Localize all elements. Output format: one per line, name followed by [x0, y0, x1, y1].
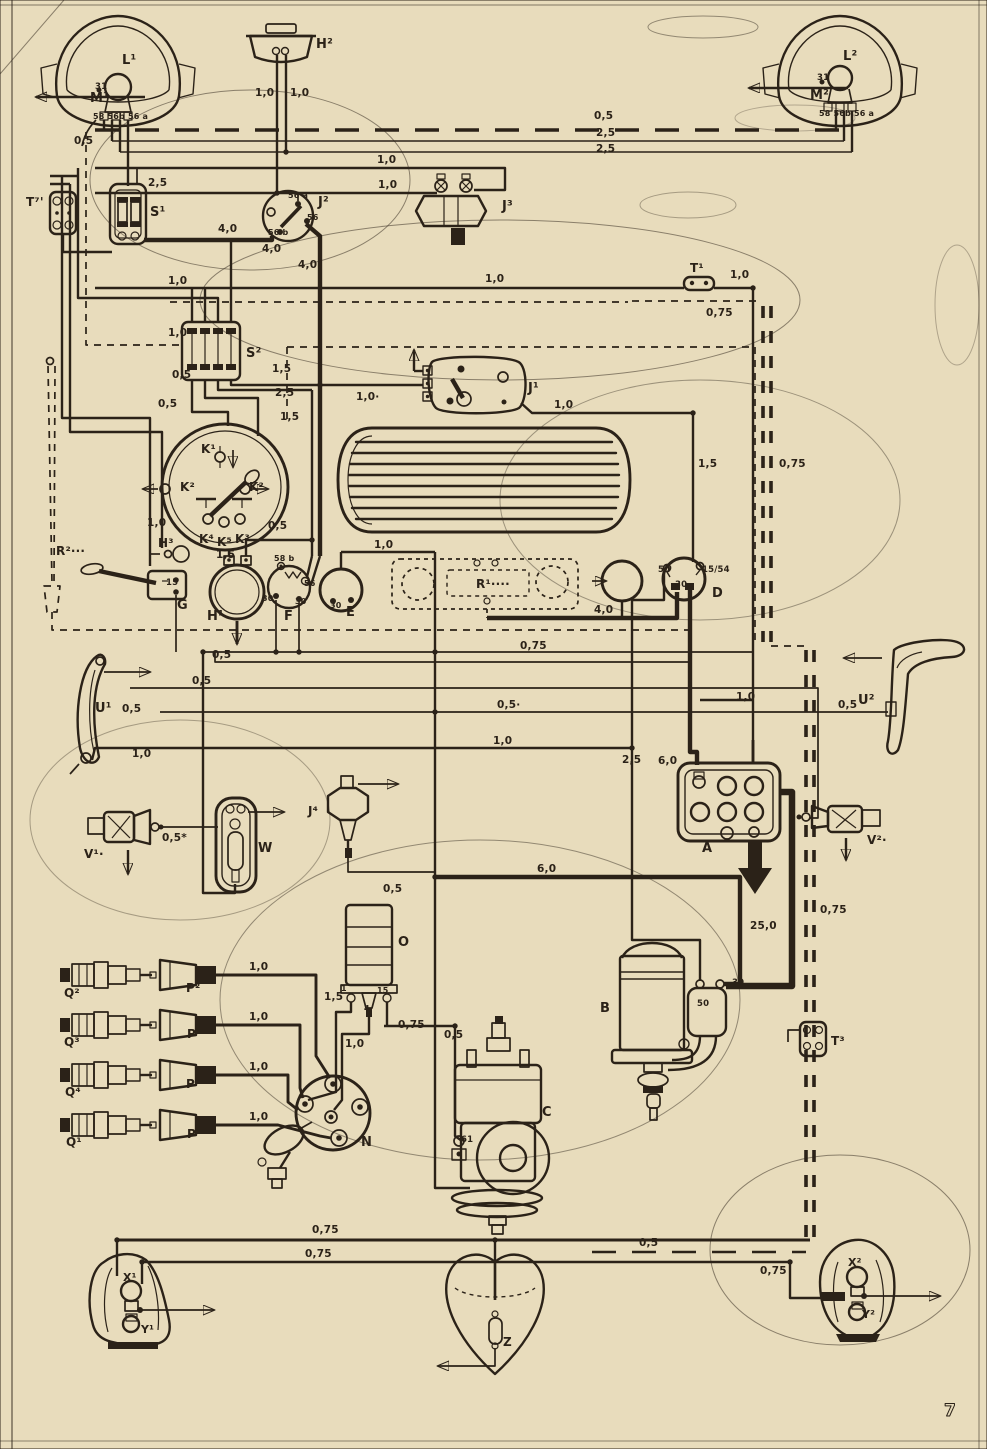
- light-switch-f: [268, 556, 320, 652]
- label-w-p1-10: 1,0: [249, 1111, 268, 1123]
- label-q1: Q¹: [66, 1135, 82, 1149]
- scanned-page: L¹M¹3158 56b 56 a0,5H²1,01,0L²31M²58 56b…: [0, 0, 987, 1449]
- label-w-j2-40b: 4,0: [262, 243, 281, 255]
- label-w-t1-10: 1,0: [730, 269, 749, 281]
- speaker-grille: [338, 428, 630, 532]
- label-w-rr-075: 0,75: [820, 904, 847, 916]
- tail-light-right: [820, 1240, 940, 1342]
- label-w-o-10: 1,0: [345, 1038, 364, 1050]
- label-c-61: 61: [461, 1135, 473, 1145]
- label-w-t1-075: 0,75: [706, 307, 733, 319]
- label-w-s1-25: 2,5: [148, 177, 167, 189]
- label-l2: L²: [843, 49, 857, 64]
- label-w-u1-05: 0,5: [122, 703, 141, 715]
- label-w-e-10: 1,0: [374, 539, 393, 551]
- label-w-s2-15a: 1,5: [272, 363, 291, 375]
- spark-plug-row: [60, 1010, 303, 1098]
- label-j2: J²: [317, 195, 329, 210]
- label-w-s2-05a: 0,5: [172, 369, 191, 381]
- label-d: D: [712, 586, 723, 601]
- label-w-s2-15b: 1,5: [280, 411, 299, 423]
- license-light-z: [438, 1255, 544, 1374]
- label-f-56: 56: [304, 579, 316, 588]
- label-w-l1-05: 0,5: [74, 135, 93, 147]
- label-w-u1-10: 1,0: [132, 748, 151, 760]
- solenoid: [688, 988, 726, 1036]
- label-w: W: [258, 841, 273, 856]
- label-l2-58: 58 56b 56 a: [819, 109, 874, 118]
- label-w-d-40: 4,0: [594, 604, 613, 616]
- label-w-run-05c: 0,5·: [497, 699, 520, 711]
- label-o-4: 4: [364, 1004, 370, 1013]
- label-l2-31: 31: [817, 73, 829, 83]
- label-o: O: [398, 935, 409, 950]
- label-w-a-25: 2,5: [622, 754, 641, 766]
- oil-switch-j4: [328, 712, 435, 872]
- turnsignal-switch-g: [80, 562, 186, 652]
- label-k3: K³: [235, 532, 250, 546]
- label-b-50: 50: [697, 999, 709, 1009]
- label-w-u2-05: 0,5: [838, 699, 857, 711]
- label-f-30a: 30: [262, 594, 274, 603]
- label-b: B: [600, 1001, 610, 1016]
- label-w-bl-075a: 0,75: [312, 1224, 339, 1236]
- label-w-p3-10: 1,0: [249, 1011, 268, 1023]
- label-w-cl-05: 0,5: [268, 520, 287, 532]
- label-q3: Q³: [64, 1035, 80, 1049]
- indicator-bulb-k5: [219, 517, 229, 527]
- label-k2l: K²: [180, 480, 195, 494]
- battery-a: [678, 740, 792, 986]
- label-w-h1-15: 1,5: [216, 549, 235, 561]
- connector-t1: [684, 277, 714, 290]
- label-y1: Y¹: [140, 1323, 154, 1336]
- ground-arrow: [738, 840, 772, 894]
- label-g-15: 15: [166, 578, 178, 588]
- label-w-j2-40c: 4,0: [298, 259, 317, 271]
- label-w-top-25b: 2,5: [596, 143, 615, 155]
- label-e: E: [346, 605, 355, 620]
- label-w-top-05: 0,5: [594, 110, 613, 122]
- label-j3: J³: [501, 199, 513, 214]
- flasher-relay-j1: [320, 350, 693, 413]
- label-x1: X¹: [123, 1271, 137, 1284]
- page-number: 7: [944, 1401, 956, 1421]
- label-c: C: [542, 1105, 552, 1120]
- label-v2: V²·: [867, 833, 887, 847]
- label-w-s2-25: 2,5: [275, 387, 294, 399]
- label-o-15: 15: [377, 986, 389, 995]
- bulb-z: [489, 1318, 502, 1344]
- label-w-cl-10: 1,0: [147, 517, 166, 529]
- label-l1: L¹: [122, 53, 136, 68]
- label-a: A: [702, 841, 712, 856]
- label-w-h2-10a: 1,0: [255, 87, 274, 99]
- label-l1-31: 31: [95, 82, 107, 92]
- label-j2-56b: 56 b: [268, 228, 289, 237]
- label-q4: Q⁴: [65, 1085, 81, 1099]
- brake-switch-j3: [416, 174, 486, 245]
- label-d-50: 50: [658, 565, 670, 575]
- label-w-p2-10: 1,0: [249, 961, 268, 973]
- label-w-60-mid: 6,0: [537, 863, 556, 875]
- label-f-30b: 30: [295, 597, 307, 606]
- label-f: F: [284, 609, 293, 624]
- indicator-bulb-k3: [235, 514, 245, 524]
- label-w-u2-10: 1,0: [736, 691, 755, 703]
- label-w-c-05: 0,5: [444, 1029, 463, 1041]
- label-w-o-15g: 1,5: [324, 991, 343, 1003]
- label-w-bz-05: 0,5: [639, 1237, 658, 1249]
- label-z: Z: [503, 1335, 512, 1349]
- label-w-a-60: 6,0: [658, 755, 677, 767]
- rear-harness: [117, 1240, 821, 1300]
- label-w-run-10: 1,0: [493, 735, 512, 747]
- ignition-switch-d: [487, 558, 705, 981]
- label-x2: X²: [848, 1256, 862, 1269]
- label-p3: P³: [187, 1027, 201, 1041]
- label-h3: H³: [158, 536, 174, 550]
- label-w-r-15: 1,5: [698, 458, 717, 470]
- label-v1: V¹·: [84, 847, 104, 861]
- label-s1: S¹: [150, 205, 165, 220]
- label-p2: P²: [186, 981, 200, 995]
- battery-cable-25: [726, 792, 792, 986]
- label-j2-56: 56: [307, 213, 319, 222]
- label-y2: Y²: [861, 1308, 875, 1321]
- label-w-run-05a: 0,5: [212, 649, 231, 661]
- paper-texture: [0, 0, 987, 1449]
- label-p1: P¹: [187, 1127, 201, 1141]
- label-t3: T³: [831, 1034, 845, 1048]
- label-j1: J¹: [527, 381, 539, 396]
- label-p4: P⁴: [186, 1077, 200, 1091]
- label-k4: K⁴: [199, 532, 214, 546]
- indicator-bulb-k1: [215, 446, 225, 468]
- headlight-left: [36, 16, 195, 186]
- label-m2: M²: [810, 88, 829, 103]
- label-w-p4-10: 1,0: [249, 1061, 268, 1073]
- label-h1: H¹: [207, 609, 224, 624]
- wiring-diagram: L¹M¹3158 56b 56 a0,5H²1,01,0L²31M²58 56b…: [0, 0, 987, 1449]
- label-j4: J⁴: [307, 804, 318, 818]
- label-s2: S²: [246, 346, 261, 361]
- label-t7: T⁷': [26, 195, 44, 209]
- starter-b: [435, 877, 740, 1120]
- label-w-j3-10a: 1,0: [377, 154, 396, 166]
- label-d-1554: 15/54: [702, 565, 730, 575]
- label-w-mid-075: 0,75: [520, 640, 547, 652]
- label-w-h2-10b: 1,0: [290, 87, 309, 99]
- label-k5: K⁵: [217, 535, 232, 549]
- label-j2-56a: 56 a: [288, 191, 308, 200]
- label-w-250: 25,0: [750, 920, 777, 932]
- label-u2: U²: [858, 693, 875, 708]
- label-w-left-10: 1,0: [168, 275, 187, 287]
- label-w-mid-10: 1,0: [485, 273, 504, 285]
- label-k1: K¹: [201, 442, 216, 456]
- label-u1: U¹: [95, 701, 112, 716]
- generator-c: [435, 552, 549, 1234]
- distributor-n: [258, 1076, 370, 1188]
- label-n: N: [361, 1135, 372, 1150]
- bulb-m2: [828, 66, 852, 90]
- label-w-top-25a: 2,5: [596, 127, 615, 139]
- bulb-x1: [121, 1281, 141, 1301]
- label-w-j3-10b: 1,0: [378, 179, 397, 191]
- label-g: G: [177, 598, 188, 613]
- turn-indicator-v1: [88, 810, 218, 874]
- label-w-bl-075b: 0,75: [305, 1248, 332, 1260]
- label-d-30: 30: [675, 580, 687, 590]
- ignition-coil-o: [308, 905, 462, 1141]
- label-f-58b: 58 b: [274, 554, 295, 563]
- label-b-30: 30: [732, 978, 744, 988]
- label-r1: R¹····: [476, 577, 510, 591]
- label-w-s2-10: 1,0: [168, 327, 187, 339]
- label-w-br-075: 0,75: [760, 1265, 787, 1277]
- label-w-r-075: 0,75: [779, 458, 806, 470]
- label-e-30: 30: [330, 601, 342, 610]
- label-w-j1-10b: 1,0: [554, 399, 573, 411]
- label-r2: R²···: [56, 544, 85, 558]
- label-w-j1-10a: 1,0·: [356, 391, 379, 403]
- label-l1-58: 58 56b 56 a: [93, 112, 148, 121]
- label-w-v1-05: 0,5*: [162, 832, 187, 844]
- bulb-x2: [847, 1267, 867, 1287]
- label-w-j2-40a: 4,0: [218, 223, 237, 235]
- cabin-harness: [92, 652, 888, 818]
- label-m1: M¹: [90, 91, 109, 106]
- label-w-s2-05b: 0,5: [158, 398, 177, 410]
- label-k2r: K²: [249, 480, 264, 494]
- label-t1: T¹: [690, 261, 704, 275]
- label-w-o-075: 0,75: [398, 1019, 425, 1031]
- top-harness: [95, 130, 852, 740]
- label-w-run-05b: 0,5: [192, 675, 211, 687]
- label-h2: H²: [316, 37, 333, 52]
- label-w-j4-05: 0,5: [383, 883, 402, 895]
- label-q2: Q²: [64, 986, 80, 1000]
